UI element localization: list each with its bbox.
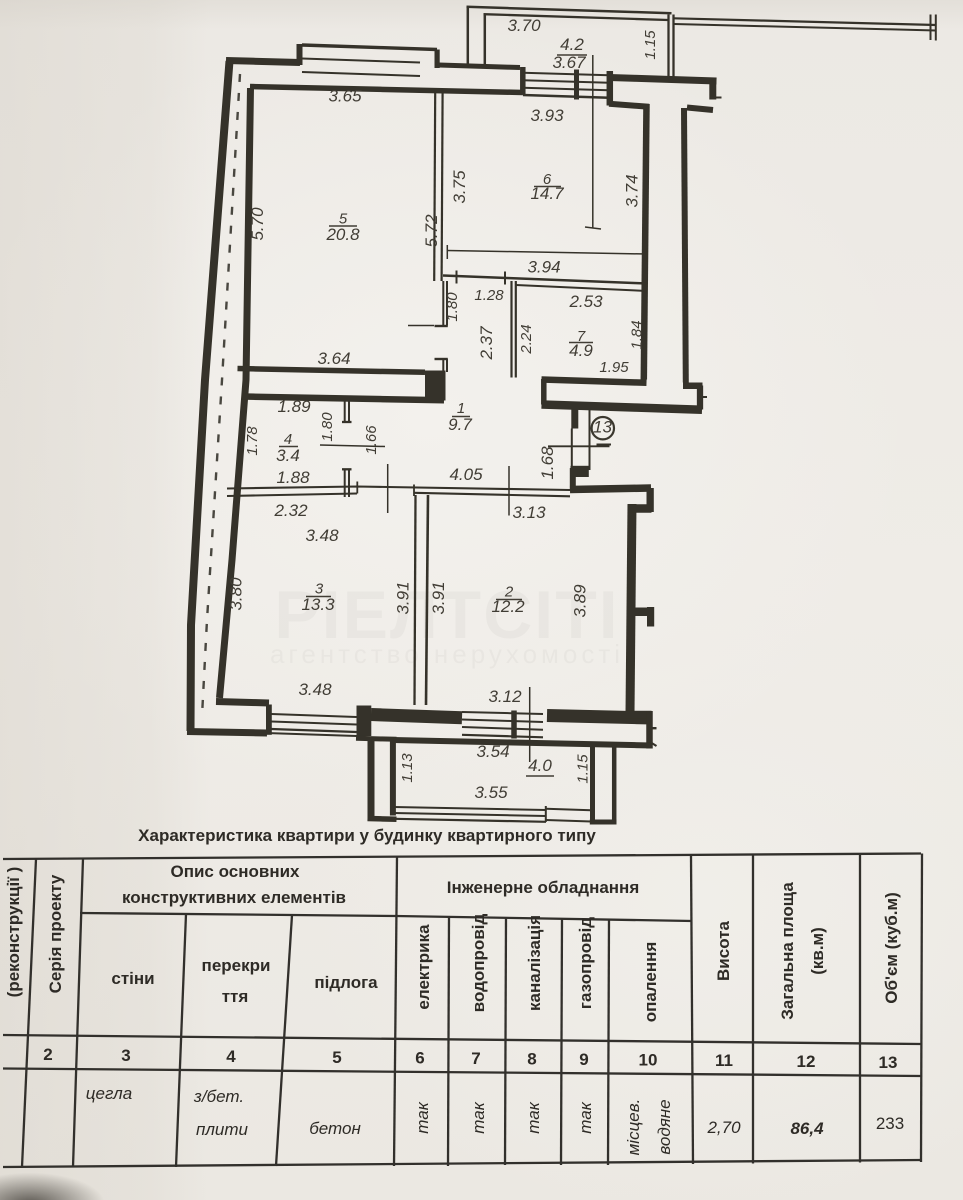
svg-text:8: 8 bbox=[527, 1050, 536, 1069]
svg-text:1.84: 1.84 bbox=[629, 320, 646, 349]
svg-text:2.24: 2.24 bbox=[518, 324, 535, 354]
svg-text:3: 3 bbox=[121, 1046, 130, 1065]
svg-text:1.28: 1.28 bbox=[474, 287, 504, 304]
svg-text:3.54: 3.54 bbox=[476, 742, 509, 761]
svg-text:1.78: 1.78 bbox=[244, 426, 261, 456]
svg-text:3.65: 3.65 bbox=[328, 87, 362, 106]
svg-text:1.80: 1.80 bbox=[444, 292, 461, 322]
svg-text:підлога: підлога bbox=[314, 973, 378, 992]
svg-text:перекри: перекри bbox=[202, 956, 271, 975]
svg-text:20.8: 20.8 bbox=[325, 225, 360, 244]
svg-text:2: 2 bbox=[43, 1045, 52, 1064]
svg-text:86,4: 86,4 bbox=[790, 1119, 824, 1138]
svg-text:1.80: 1.80 bbox=[319, 412, 336, 442]
svg-text:7: 7 bbox=[471, 1049, 480, 1068]
svg-text:Об'єм (куб.м): Об'єм (куб.м) bbox=[882, 892, 901, 1004]
svg-text:водопровід: водопровід bbox=[469, 914, 488, 1013]
svg-text:3.48: 3.48 bbox=[298, 680, 332, 699]
svg-text:5: 5 bbox=[332, 1048, 341, 1067]
svg-text:каналізація: каналізація bbox=[525, 915, 544, 1011]
svg-text:1.88: 1.88 bbox=[276, 468, 310, 487]
svg-text:4: 4 bbox=[226, 1047, 236, 1066]
svg-text:2.37: 2.37 bbox=[477, 326, 496, 361]
svg-text:10: 10 bbox=[639, 1051, 658, 1070]
svg-text:1.95: 1.95 bbox=[599, 359, 629, 376]
svg-text:6: 6 bbox=[415, 1049, 424, 1068]
svg-text:водяне: водяне bbox=[655, 1099, 674, 1154]
svg-text:3.70: 3.70 bbox=[507, 16, 541, 35]
svg-text:4.9: 4.9 bbox=[569, 341, 593, 360]
svg-text:так: так bbox=[469, 1101, 488, 1133]
svg-text:(реконструкції ): (реконструкції ) bbox=[4, 867, 23, 998]
svg-text:Загальна площа: Загальна площа bbox=[778, 882, 797, 1020]
svg-text:2,70: 2,70 bbox=[706, 1118, 741, 1137]
svg-text:1.68: 1.68 bbox=[538, 446, 557, 480]
svg-text:3.4: 3.4 bbox=[276, 446, 300, 465]
svg-text:3.93: 3.93 bbox=[530, 106, 564, 125]
svg-text:конструктивних елементів: конструктивних елементів bbox=[122, 888, 346, 907]
svg-text:Серія проекту: Серія проекту bbox=[46, 874, 65, 993]
svg-text:з/бет.: з/бет. bbox=[193, 1087, 244, 1106]
svg-text:Інженерне обладнання: Інженерне обладнання bbox=[447, 878, 640, 897]
svg-text:3.13: 3.13 bbox=[512, 503, 546, 522]
svg-text:9: 9 bbox=[579, 1050, 588, 1069]
svg-text:2.53: 2.53 bbox=[568, 292, 603, 311]
svg-text:3.67: 3.67 bbox=[552, 53, 586, 72]
svg-text:5.72: 5.72 bbox=[422, 214, 441, 248]
svg-text:1.89: 1.89 bbox=[277, 397, 311, 416]
svg-text:3.55: 3.55 bbox=[474, 783, 508, 802]
svg-text:3.75: 3.75 bbox=[450, 170, 469, 204]
svg-text:14.7: 14.7 bbox=[530, 184, 564, 203]
svg-text:1.15: 1.15 bbox=[575, 754, 592, 784]
svg-text:233: 233 bbox=[876, 1114, 904, 1133]
svg-text:3.94: 3.94 bbox=[527, 258, 560, 277]
svg-text:місцев.: місцев. bbox=[624, 1099, 643, 1156]
svg-text:цегла: цегла bbox=[86, 1084, 132, 1103]
svg-text:ття: ття bbox=[222, 987, 249, 1006]
svg-text:3.48: 3.48 bbox=[305, 526, 339, 545]
svg-text:(кв.м): (кв.м) bbox=[808, 927, 827, 975]
svg-text:так: так bbox=[524, 1101, 543, 1133]
svg-text:4.05: 4.05 bbox=[449, 465, 483, 484]
svg-text:1.15: 1.15 bbox=[642, 30, 659, 60]
svg-text:так: так bbox=[413, 1101, 432, 1133]
svg-text:2.32: 2.32 bbox=[273, 501, 308, 520]
svg-text:бетон: бетон bbox=[309, 1119, 361, 1138]
svg-text:плити: плити bbox=[196, 1120, 249, 1139]
svg-text:4.2: 4.2 bbox=[560, 35, 584, 54]
svg-text:13.3: 13.3 bbox=[301, 595, 335, 614]
svg-text:12.2: 12.2 bbox=[491, 597, 525, 616]
svg-text:опалення: опалення bbox=[641, 942, 660, 1023]
svg-text:3.89: 3.89 bbox=[571, 584, 590, 618]
svg-text:3.12: 3.12 bbox=[488, 687, 522, 706]
svg-text:газопровід: газопровід bbox=[576, 917, 595, 1009]
svg-text:3.80: 3.80 bbox=[227, 577, 246, 611]
svg-text:Висота: Висота bbox=[714, 921, 733, 981]
svg-text:1.13: 1.13 bbox=[399, 753, 416, 783]
svg-text:агентство нерухомості: агентство нерухомості bbox=[270, 639, 624, 669]
svg-text:3.64: 3.64 bbox=[317, 349, 350, 368]
svg-text:4.0: 4.0 bbox=[528, 756, 552, 775]
svg-text:11: 11 bbox=[715, 1051, 733, 1070]
svg-text:Опис основних: Опис основних bbox=[170, 862, 300, 881]
svg-text:3.91: 3.91 bbox=[429, 581, 448, 614]
svg-text:3.74: 3.74 bbox=[623, 174, 642, 207]
svg-text:9.7: 9.7 bbox=[448, 415, 472, 434]
svg-text:13: 13 bbox=[879, 1053, 898, 1072]
svg-text:1.66: 1.66 bbox=[363, 425, 380, 455]
svg-text:12: 12 bbox=[797, 1052, 816, 1071]
svg-text:5.70: 5.70 bbox=[248, 207, 267, 241]
svg-text:Характеристика квартири у буди: Характеристика квартири у будинку кварти… bbox=[138, 826, 596, 845]
svg-text:3.91: 3.91 bbox=[394, 581, 413, 614]
svg-text:електрика: електрика bbox=[414, 924, 433, 1010]
svg-text:стіни: стіни bbox=[111, 969, 154, 988]
svg-text:так: так bbox=[576, 1101, 595, 1133]
svg-text:13: 13 bbox=[593, 418, 612, 437]
